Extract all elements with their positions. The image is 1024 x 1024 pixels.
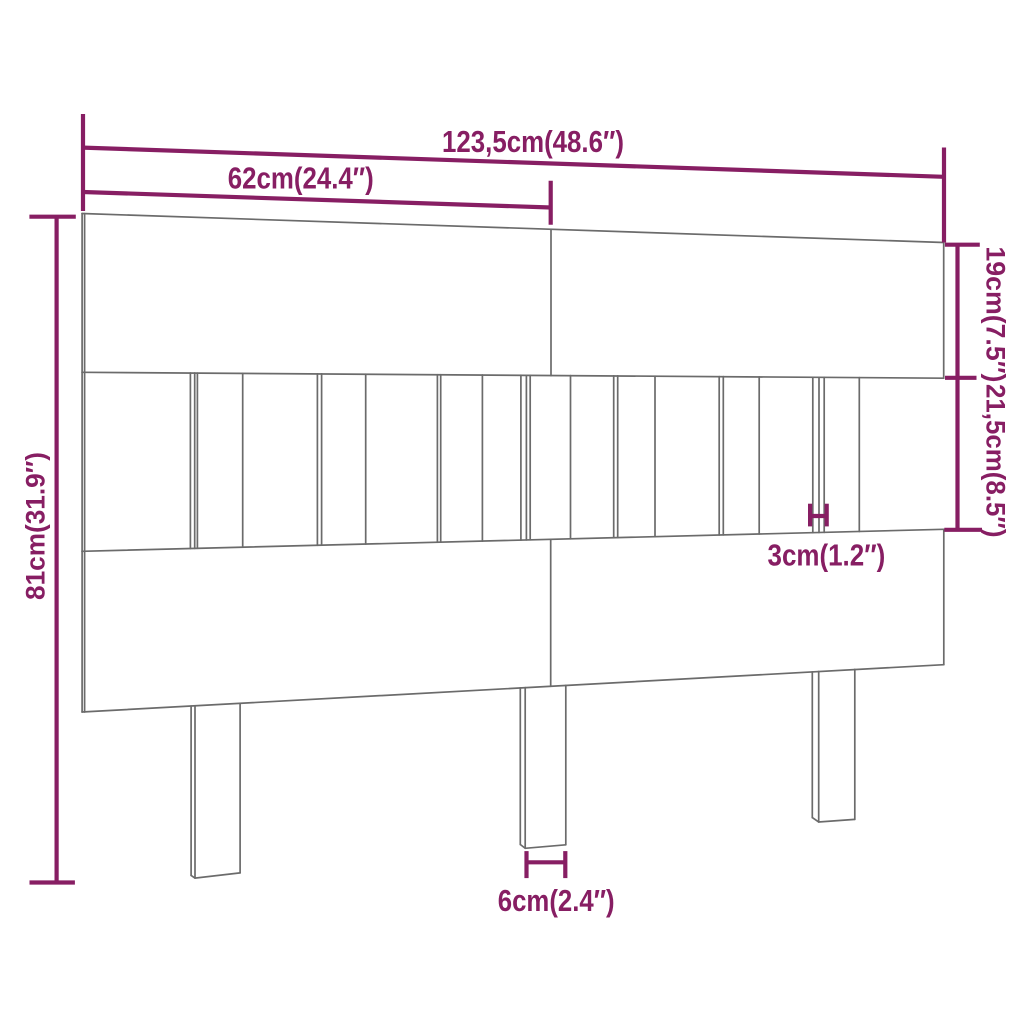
svg-text:3cm(1.2″): 3cm(1.2″) bbox=[768, 537, 886, 572]
svg-text:81cm(31.9″): 81cm(31.9″) bbox=[21, 452, 51, 600]
svg-text:21,5cm(8.5″): 21,5cm(8.5″) bbox=[980, 384, 1010, 538]
svg-text:19cm(7.5″): 19cm(7.5″) bbox=[980, 246, 1010, 382]
svg-text:62cm(24.4″): 62cm(24.4″) bbox=[228, 161, 374, 196]
svg-text:123,5cm(48.6″): 123,5cm(48.6″) bbox=[442, 124, 624, 159]
svg-text:6cm(2.4″): 6cm(2.4″) bbox=[498, 883, 615, 918]
